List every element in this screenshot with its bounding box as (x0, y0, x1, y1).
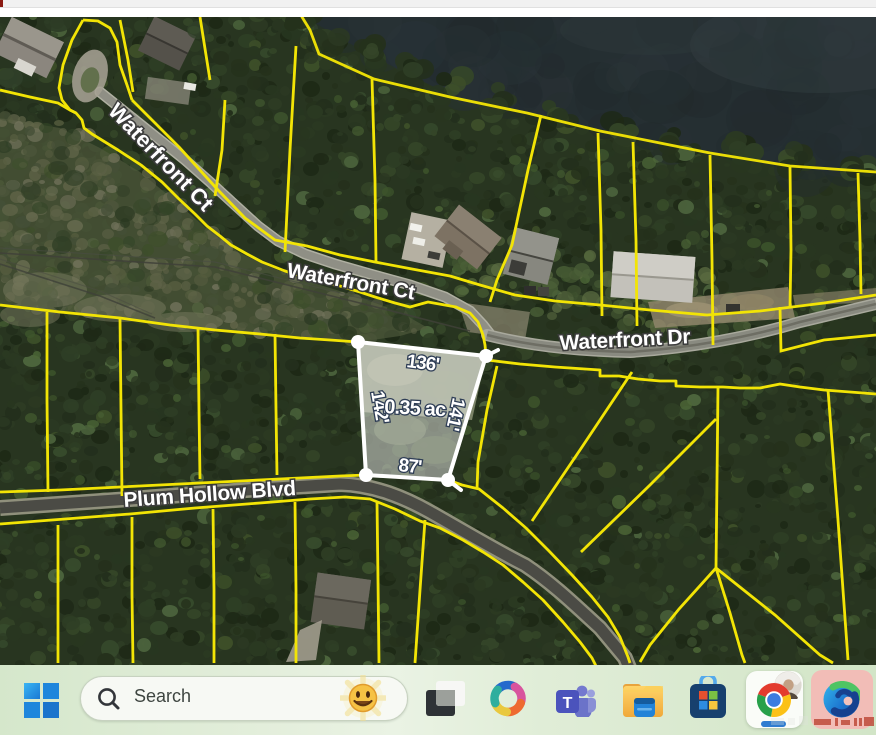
svg-text:136': 136' (405, 351, 440, 376)
svg-text:T: T (563, 695, 573, 712)
svg-text:0.35 ac: 0.35 ac (384, 396, 447, 421)
svg-text:87': 87' (397, 455, 422, 478)
